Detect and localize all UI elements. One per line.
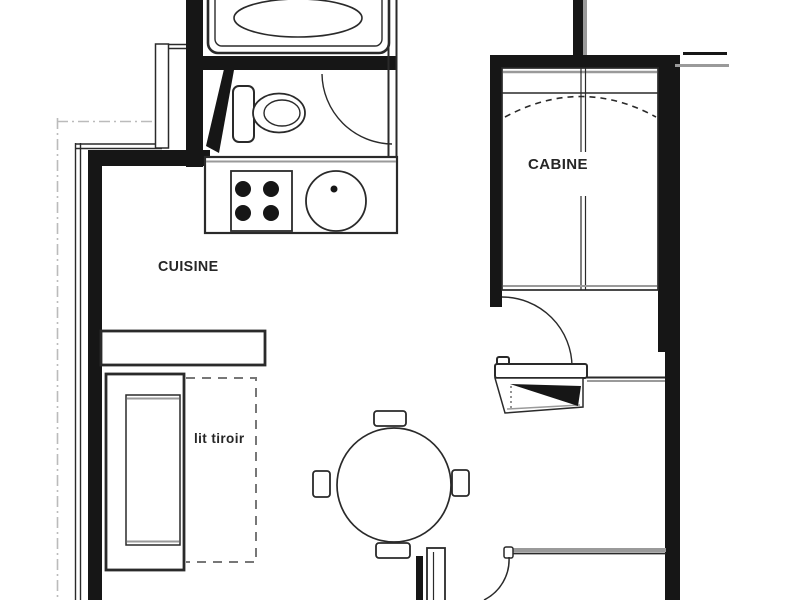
partition-lower-gray xyxy=(508,548,666,552)
neighbour-line-upper xyxy=(683,52,727,55)
wc-door-leaf xyxy=(206,69,234,153)
kitchen-counter xyxy=(205,157,397,233)
wc-door-arc xyxy=(322,74,392,144)
wall-step-horizontal xyxy=(88,150,210,166)
closet-body xyxy=(427,548,445,600)
entry-storage xyxy=(495,357,665,413)
door-hinge-block xyxy=(504,547,513,558)
chair-right xyxy=(452,470,469,496)
wall-cabine-left xyxy=(490,55,502,307)
wc xyxy=(206,69,392,153)
toilet-bowl xyxy=(253,94,305,133)
floor-plan: CUISINE CABINE lit tiroir xyxy=(0,0,800,600)
thin-wall-channel xyxy=(156,44,169,148)
entrance-door-arc xyxy=(484,557,509,600)
closet-hatch-strip xyxy=(416,556,423,600)
cabine-bed xyxy=(502,68,658,290)
cabine-door-arc xyxy=(502,297,572,367)
chair-top xyxy=(374,411,406,426)
dining-area xyxy=(313,411,469,558)
burner-1 xyxy=(235,181,251,197)
cabin-label: CABINE xyxy=(526,156,590,173)
wall-shelf xyxy=(101,331,265,365)
sink-drain xyxy=(331,186,338,193)
storage-top-bar xyxy=(495,364,587,378)
burner-4 xyxy=(263,205,279,221)
dining-table xyxy=(337,428,451,542)
pullout-bed-label: lit tiroir xyxy=(194,431,245,446)
sofa-seat xyxy=(126,395,180,545)
wall-exterior-left xyxy=(88,150,102,600)
entrance-area xyxy=(416,547,666,600)
kitchen-label: CUISINE xyxy=(158,258,218,275)
wall-top-stub xyxy=(573,0,583,58)
cabine-room xyxy=(502,68,658,367)
chair-left xyxy=(313,471,330,497)
wall-bath-wc-separator xyxy=(203,56,397,70)
bathroom xyxy=(208,0,389,53)
wall-exterior-right-lower xyxy=(665,352,680,600)
bathtub xyxy=(208,0,389,53)
wall-exterior-right-upper xyxy=(658,55,680,352)
wall-bath-left xyxy=(186,0,203,167)
pullout-bed-dashed xyxy=(186,378,256,562)
neighbour-line-lower xyxy=(675,64,729,67)
chair-bottom xyxy=(376,543,410,558)
toilet-tank xyxy=(233,86,254,142)
wall-cabine-top xyxy=(490,55,680,68)
burner-2 xyxy=(263,181,279,197)
burner-3 xyxy=(235,205,251,221)
wall-top-stub-shadow xyxy=(583,0,587,58)
floor-plan-linework xyxy=(0,0,800,600)
living-area xyxy=(101,331,265,570)
kitchen xyxy=(205,157,397,233)
